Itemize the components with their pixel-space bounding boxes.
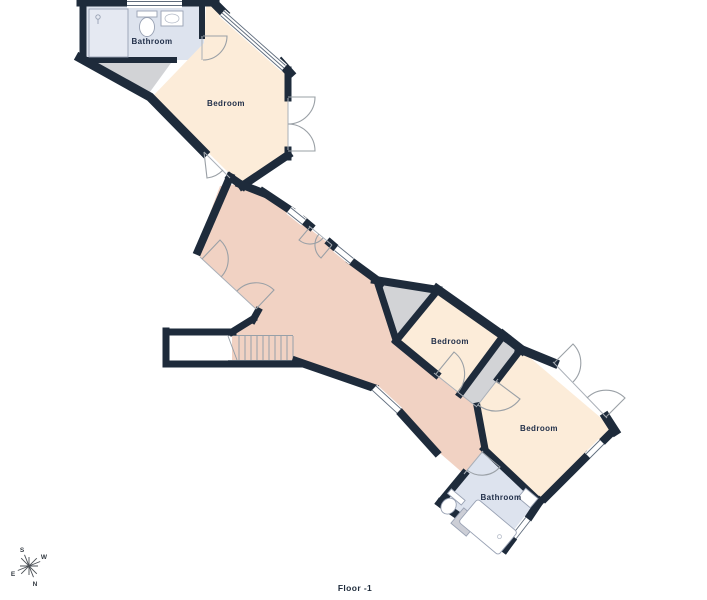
room-label-bedroom-lower: Bedroom bbox=[520, 424, 558, 433]
room-label-bathroom-lower: Bathroom bbox=[481, 493, 522, 502]
toilet-tank-upper bbox=[137, 11, 157, 17]
compass-east: E bbox=[11, 571, 16, 578]
room-label-bedroom-upper: Bedroom bbox=[207, 99, 245, 108]
room-label-bedroom-middle: Bedroom bbox=[431, 337, 469, 346]
compass-north: N bbox=[33, 581, 38, 588]
compass-south: S bbox=[20, 547, 25, 554]
room-label-bathroom-upper: Bathroom bbox=[132, 37, 173, 46]
double-door-bedroom-upper-b bbox=[288, 124, 315, 151]
window-bathroom-upper bbox=[127, 2, 182, 6]
double-door-bedroom-upper-a bbox=[288, 97, 315, 124]
compass-rose: S W E N bbox=[11, 547, 48, 588]
stair-void bbox=[170, 335, 230, 361]
floor-label: Floor -1 bbox=[338, 583, 372, 593]
sink-upper bbox=[161, 11, 183, 26]
compass-star bbox=[18, 555, 40, 577]
compass-west: W bbox=[41, 554, 48, 561]
rooms-layer bbox=[86, 6, 614, 550]
floor-plan-svg: Bathroom Bedroom Bedroom Bedroom Bathroo… bbox=[0, 0, 707, 600]
toilet-upper bbox=[140, 18, 155, 37]
shower-upper bbox=[89, 9, 128, 57]
